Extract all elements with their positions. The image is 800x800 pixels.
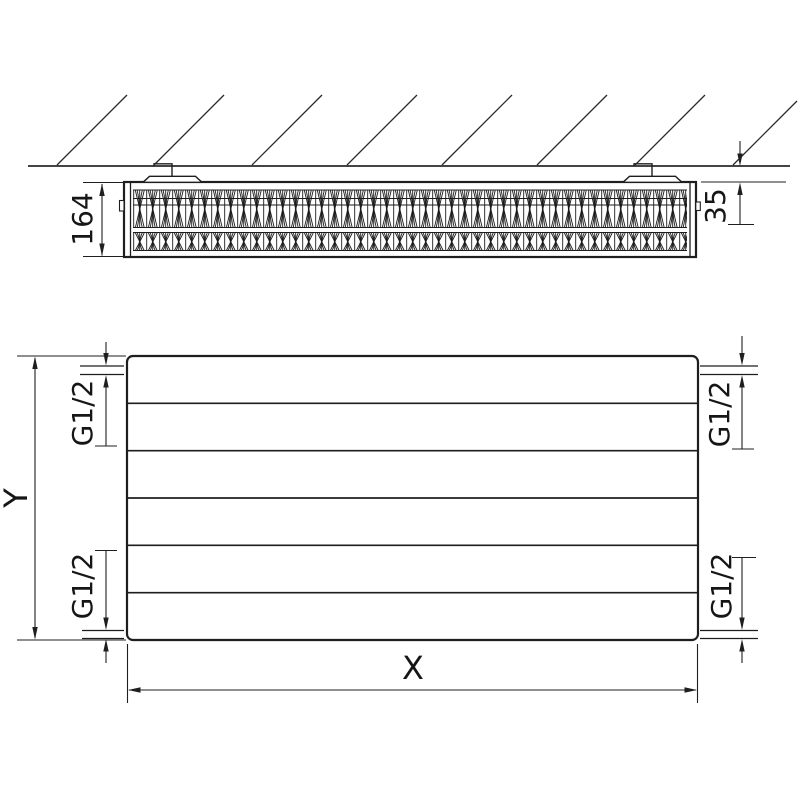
arrow-up-icon [103, 639, 108, 652]
dimension-depth-164: 164 [66, 183, 124, 257]
convector-fins [133, 190, 687, 251]
radiator-side-view [120, 164, 701, 257]
conn-label-bottom-left: G1/2 [66, 553, 99, 620]
arrow-down-icon [99, 244, 104, 257]
arrow-up-icon [737, 183, 742, 196]
arrow-right-icon [685, 687, 698, 692]
arrow-up-icon [32, 357, 37, 370]
arrow-down-icon [739, 353, 744, 366]
radiator-front-view [80, 356, 758, 640]
conn-label-top-right: G1/2 [703, 381, 736, 448]
arrow-down-icon [103, 618, 108, 631]
arrow-up-icon [739, 375, 744, 388]
width-dimension-label: X [402, 649, 424, 687]
arrow-up-icon [739, 639, 744, 652]
depth-dimension-label: 164 [66, 192, 99, 245]
wall-gap-dimension-label: 35 [699, 188, 732, 224]
drawing-svg: 164 35 [0, 0, 800, 800]
conn-label-bottom-right: G1/2 [705, 553, 738, 620]
dimension-conn-top-right: G1/2 [703, 336, 754, 449]
arrow-left-icon [128, 687, 141, 692]
dimension-height-Y: Y [0, 356, 126, 640]
height-dimension-label: Y [0, 488, 35, 509]
dimension-conn-bottom-left: G1/2 [66, 551, 117, 664]
dimension-width-X: X [128, 644, 698, 703]
arrow-down-icon [32, 627, 37, 640]
side-tab-left [120, 201, 125, 212]
conn-label-top-left: G1/2 [66, 380, 99, 447]
dimension-conn-top-left: G1/2 [66, 342, 117, 446]
arrow-up-icon [103, 375, 108, 388]
dimension-conn-bottom-right: G1/2 [705, 553, 756, 663]
radiator-technical-drawing: 164 35 [0, 0, 800, 800]
arrow-up-icon [99, 184, 104, 197]
arrow-down-icon [103, 353, 108, 366]
wall-section [28, 95, 797, 166]
wall-hatching [57, 95, 797, 165]
dimension-wall-gap-35: 35 [699, 141, 786, 225]
arrow-down-icon [739, 618, 744, 631]
